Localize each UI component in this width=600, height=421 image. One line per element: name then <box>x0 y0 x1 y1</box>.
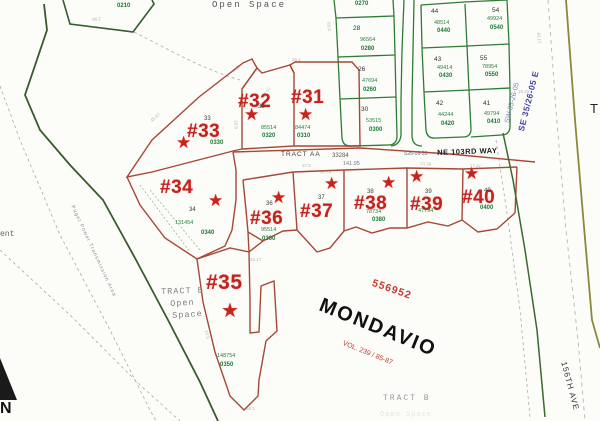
grid-lot-26-area: 47694 <box>362 79 377 85</box>
dimension-label: 65.0 <box>326 22 332 31</box>
lot-36-star-icon: ★ <box>271 189 286 206</box>
dimension-label: 16.32 <box>518 90 529 95</box>
grid-lot-55-number: 55 <box>480 56 487 63</box>
corner-emblem-triangle <box>0 358 17 400</box>
lot-36-area: 95514 <box>261 228 276 234</box>
grid-lot-26-parcel: 0260 <box>363 87 376 93</box>
dimension-label: 17.41 <box>470 164 482 169</box>
lot-34-label: #34 <box>160 178 193 197</box>
grid-lot-30-area: 53515 <box>366 119 381 125</box>
dimension-label: 37.5 <box>302 164 311 169</box>
lot-34-star-icon: ★ <box>208 192 223 209</box>
lot-31-parcel: 0310 <box>297 133 310 139</box>
lot-38-parcel: 0380 <box>372 217 385 223</box>
grid-lot-54-area: 49924 <box>487 17 502 23</box>
north-arrow-partial-letter: N <box>0 401 12 417</box>
tract-aa-number: 33284 <box>332 153 349 159</box>
lot-32-area: 85514 <box>261 126 276 132</box>
lot-35-parcel: 0350 <box>220 362 233 368</box>
lot-31-area: 84474 <box>295 126 310 132</box>
grid-lot-44-area: 48514 <box>434 21 449 27</box>
east-road-lines <box>496 0 600 421</box>
lot-35-star-icon: ★ <box>221 301 239 321</box>
lot-39-star-icon: ★ <box>409 168 424 185</box>
dashed-contour-lines <box>0 32 240 421</box>
grid-lot-41-number: 41 <box>483 101 490 108</box>
lot-33-parcel: 0330 <box>210 140 223 146</box>
tract-b-bottom-open-space: Open Space <box>380 412 432 419</box>
lot-33-number: 33 <box>204 116 211 122</box>
lot-31-star-icon: ★ <box>298 106 313 123</box>
lot-34-area: 131454 <box>175 221 193 227</box>
dimension-label: 14.5 <box>204 330 210 339</box>
dimension-label: 58.1 <box>246 407 255 412</box>
lot-32-parcel: 0320 <box>262 133 275 139</box>
lot-33-star-icon: ★ <box>176 134 191 151</box>
tract-b-left-label: TRACT B <box>161 287 204 297</box>
open-space-parcel-outline <box>63 0 154 32</box>
lot-39-area: 47794 <box>418 209 433 215</box>
lot-33-label: #33 <box>187 122 220 141</box>
grid-lot-41-parcel: 0410 <box>487 119 500 125</box>
lot-34-number: 34 <box>189 207 196 213</box>
grid-lot-54-number: 54 <box>492 8 499 15</box>
street-section-prefix: S26-16-33 <box>404 152 427 157</box>
lot-38-star-icon: ★ <box>381 174 396 191</box>
left-edge-partial-text: ent <box>0 231 14 239</box>
lot-40-parcel: 0400 <box>480 205 493 211</box>
lot-35-label: #35 <box>206 272 243 293</box>
dimension-label: 12.74 <box>320 170 332 175</box>
grid-lot-42-number: 42 <box>436 101 443 108</box>
lot-36-number: 36 <box>266 201 273 207</box>
lot-37-label: #37 <box>300 202 333 221</box>
grid-lot-28-parcel: 0280 <box>361 46 374 52</box>
grid-lot-28-number: 28 <box>353 26 360 33</box>
grid-lot-43-number: 43 <box>434 57 441 64</box>
open-space-top-label: Open Space <box>212 1 286 10</box>
grid-lot-44-parcel: 0440 <box>437 28 450 34</box>
lot-34-parcel: 0340 <box>201 230 214 236</box>
lot-40-number: 40 <box>484 188 491 194</box>
grid-lot-42-area: 44244 <box>438 113 453 119</box>
grid-lot-30-number: 30 <box>361 107 368 114</box>
dimension-label: 45.17 <box>250 258 261 263</box>
grid-lot-41-area: 49794 <box>484 112 499 118</box>
lot-38-number: 38 <box>367 189 374 195</box>
grid-lot-55-area: 78954 <box>482 65 497 71</box>
grid-lot-55-parcel: 0550 <box>485 72 498 78</box>
plat-map: Open Space 0210 0270 28 96564 0280 26 47… <box>0 0 600 421</box>
grid-lot-43-parcel: 0430 <box>439 73 452 79</box>
dimension-label: 29.9 <box>233 120 238 129</box>
tract-aa-dimension: 141.95 <box>343 162 360 168</box>
lot-37-number: 37 <box>318 195 325 201</box>
street-ne-103rd-way-label: NE 103RD WAY <box>437 147 498 157</box>
dimension-label: 40.17 <box>536 32 542 44</box>
lot-38-area: 78734 <box>366 210 381 216</box>
tract-b-bottom-label: TRACT B <box>383 395 431 403</box>
parcel-0210-label: 0210 <box>117 3 130 9</box>
grid-lot-44-number: 44 <box>431 9 438 16</box>
grid-lot-42-parcel: 0420 <box>441 121 454 127</box>
grid-lot-43-area: 49414 <box>437 66 452 72</box>
right-edge-partial-text: T <box>590 102 598 115</box>
lot-37-star-icon: ★ <box>324 175 339 192</box>
parcel-0270-label: 0270 <box>355 1 368 7</box>
tract-aa-label: TRACT AA <box>281 152 321 159</box>
lot-36-parcel: 0360 <box>262 236 275 242</box>
tract-b-left-open: Open <box>170 299 195 309</box>
dimension-label: 25.1 <box>292 58 301 63</box>
grid-lot-30-parcel: 0300 <box>369 127 382 133</box>
lot-36-label: #36 <box>250 209 283 228</box>
lot-32-number: 32 <box>258 104 265 110</box>
lot-35-area: 148754 <box>217 354 235 360</box>
dimension-label: 13.39 <box>420 162 432 167</box>
dimension-label: 96.2 <box>92 17 101 22</box>
grid-lot-26-number: 26 <box>358 67 365 74</box>
grid-lot-28-area: 96564 <box>360 38 375 44</box>
grid-lot-54-parcel: 0540 <box>490 25 503 31</box>
tract-b-left-space: Space <box>172 310 203 321</box>
lot-32-star-icon: ★ <box>244 106 259 123</box>
lot-39-number: 39 <box>425 189 432 195</box>
